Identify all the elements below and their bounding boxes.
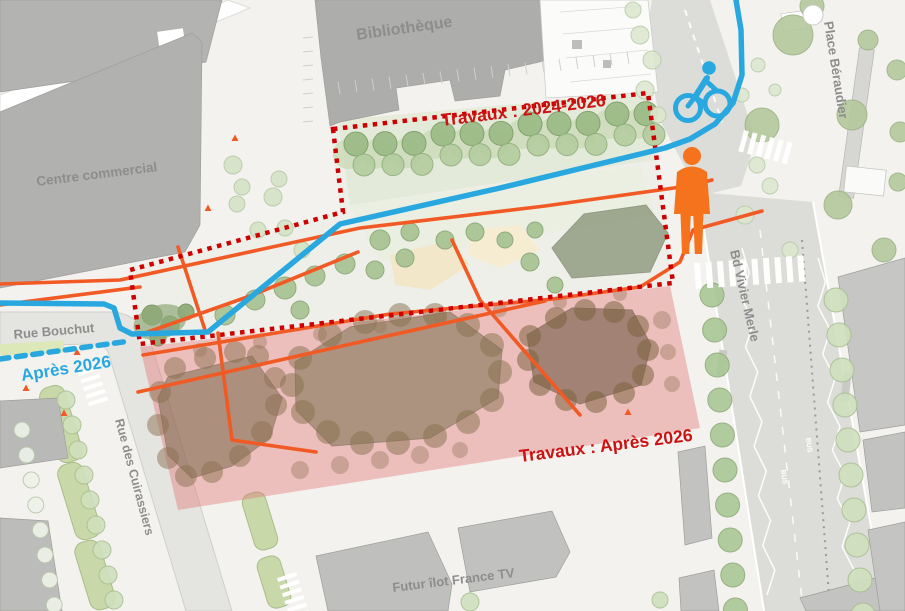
- map-container: Bibliothèque Centre commercial Place Bér…: [0, 0, 905, 611]
- urban-works-map: Bibliothèque Centre commercial Place Bér…: [0, 0, 905, 611]
